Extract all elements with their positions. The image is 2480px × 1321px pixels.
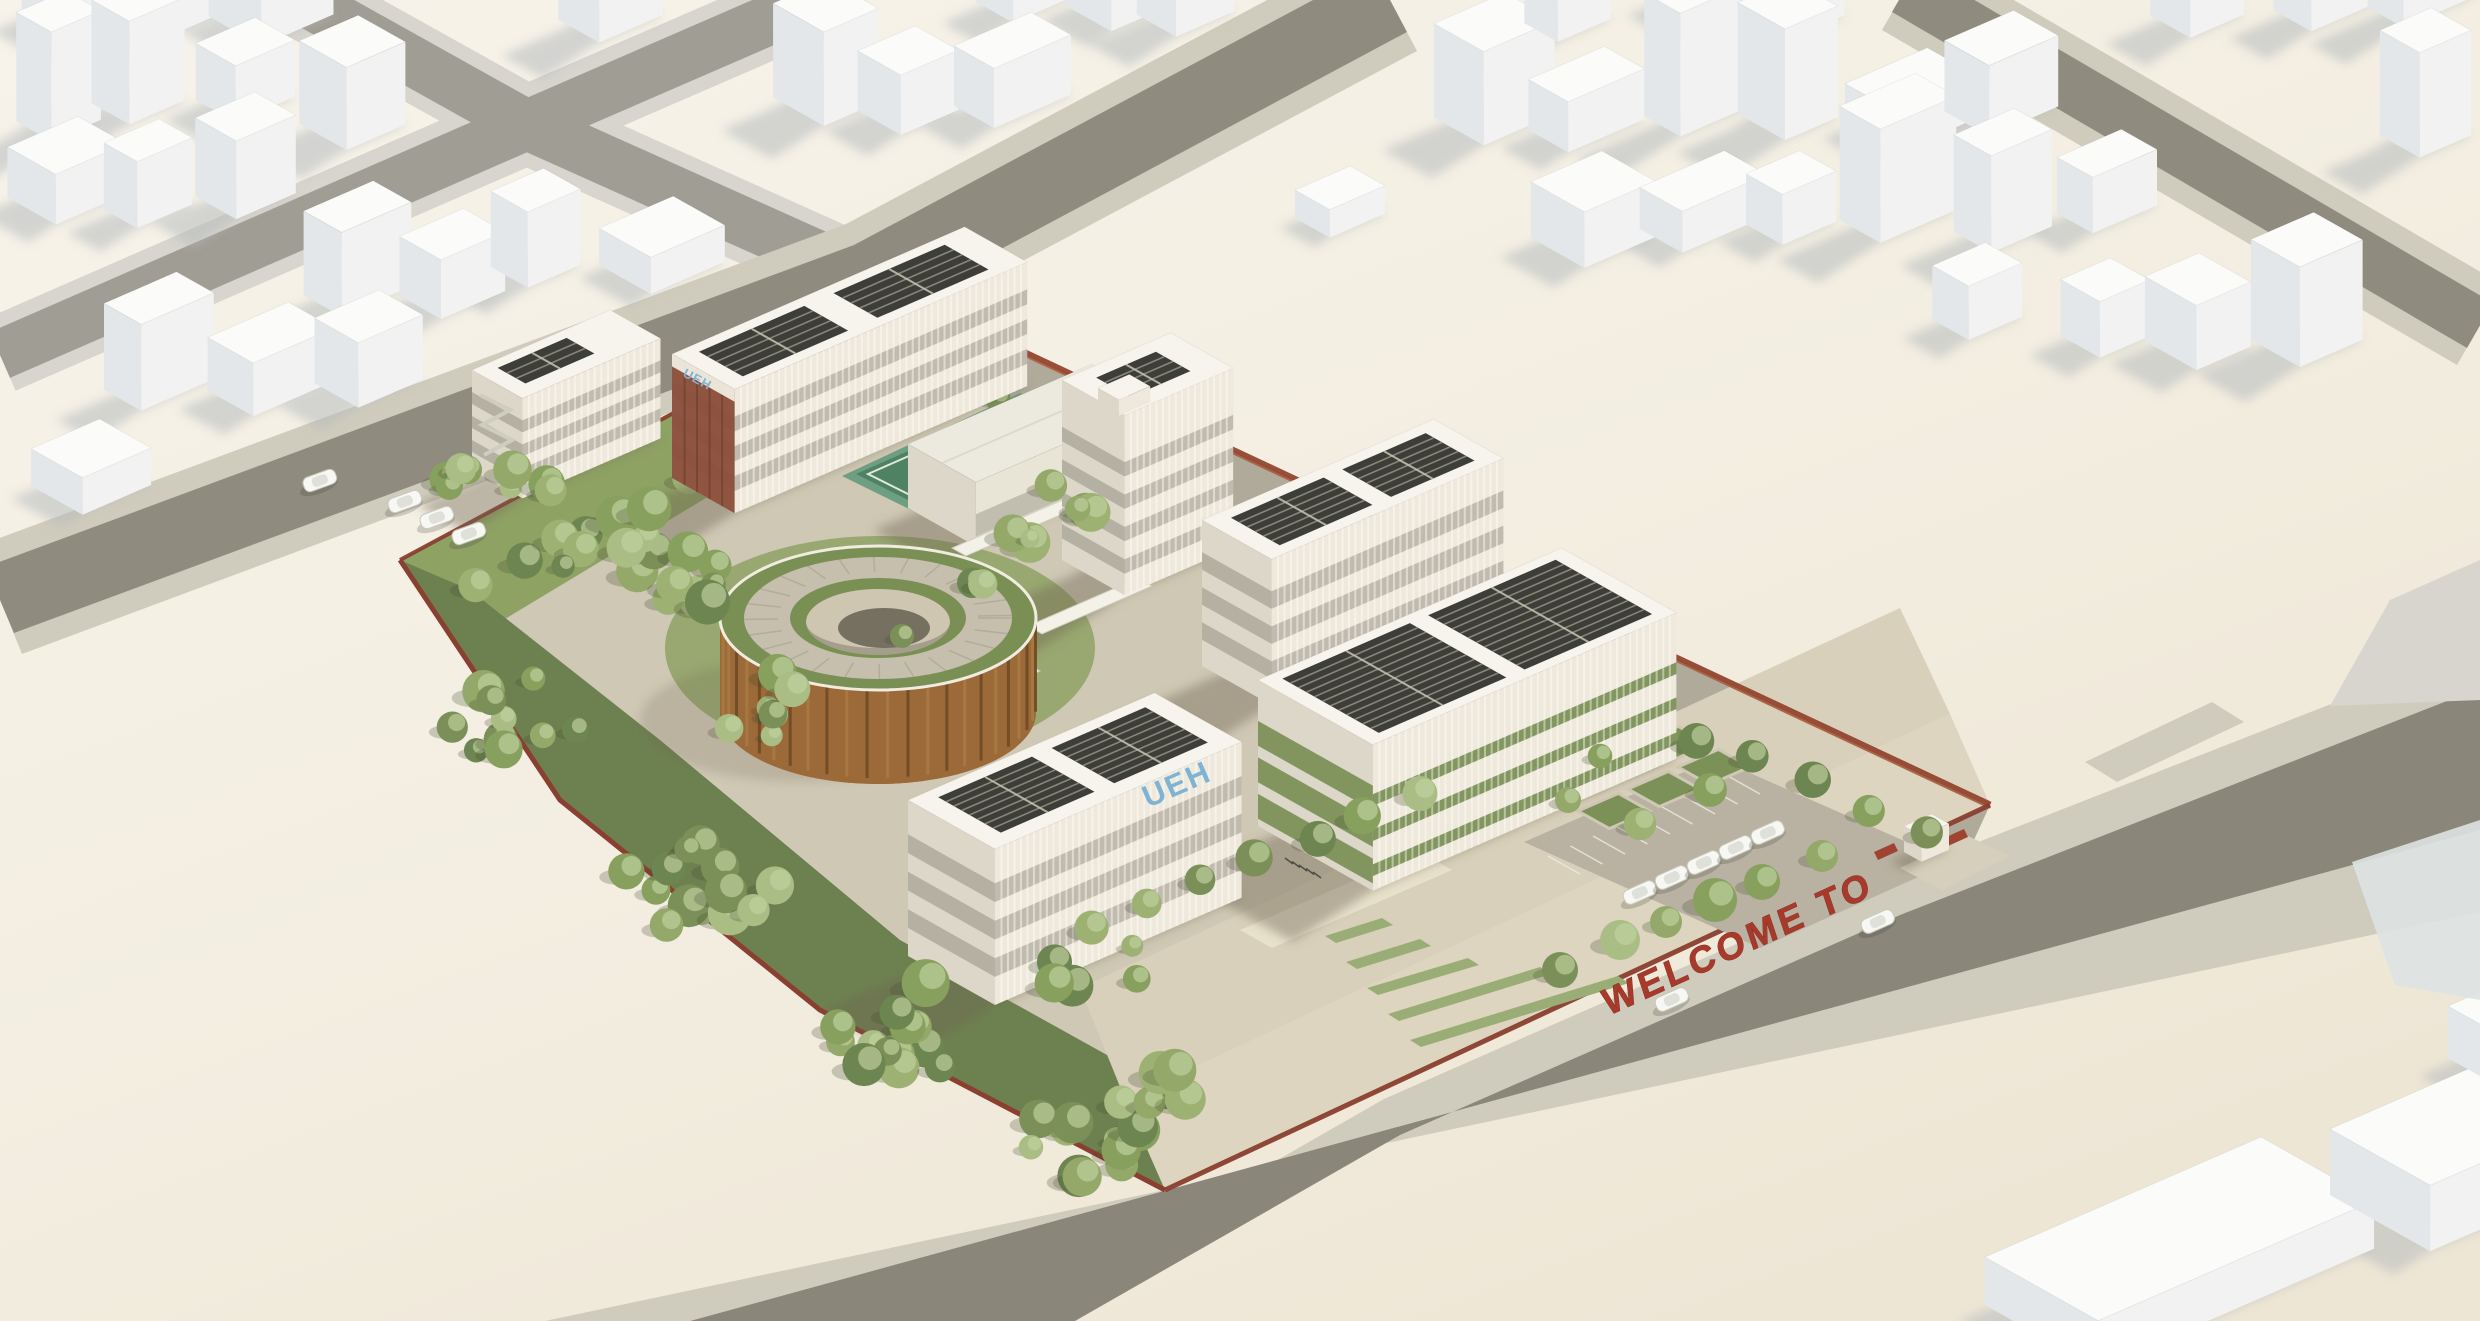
- campus-aerial-render-stage: UEH UEH WELCOME TO: [0, 0, 2480, 1321]
- campus-aerial-render: UEH UEH WELCOME TO: [0, 0, 2480, 1321]
